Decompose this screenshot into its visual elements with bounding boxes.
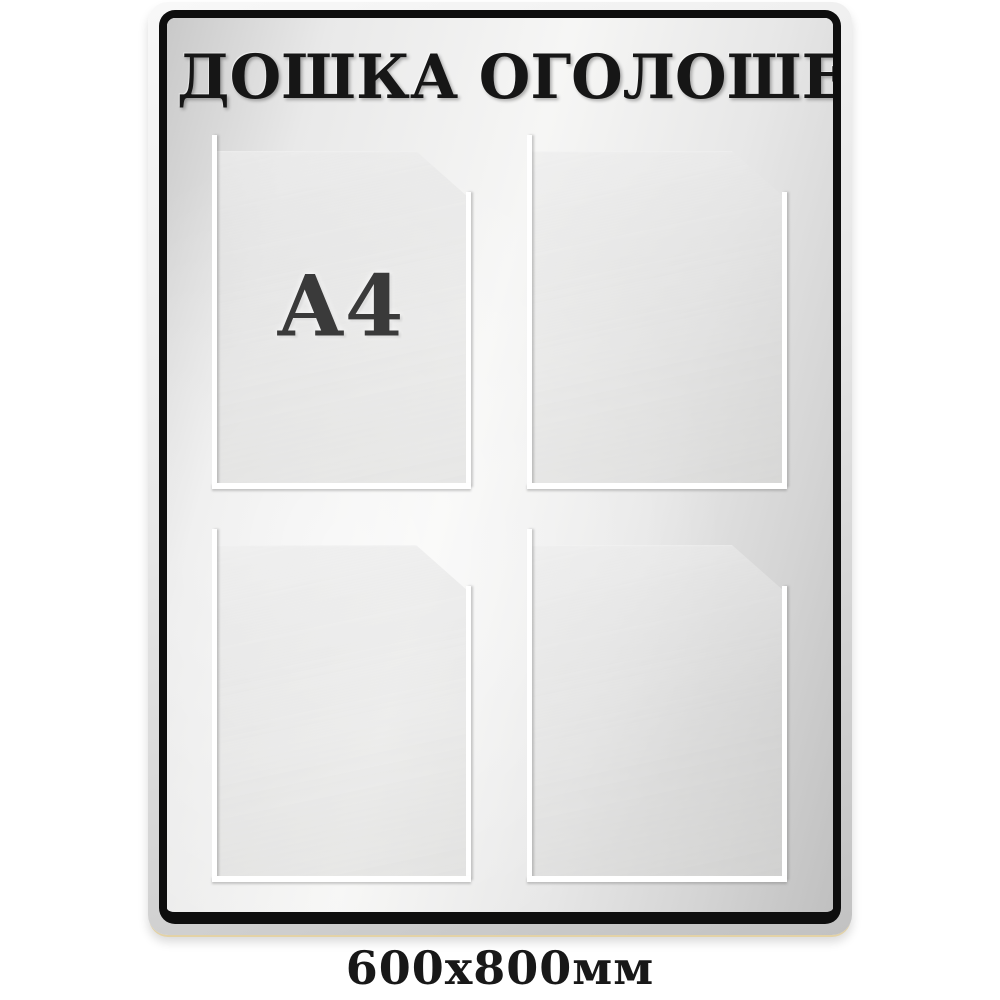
pocket-format-label: A4 xyxy=(278,257,406,356)
board-interior: ДОШКА ОГОЛОШЕНЬ A4 xyxy=(167,18,833,912)
pocket-sheet xyxy=(215,545,468,877)
pocket-bottom-right xyxy=(527,529,787,882)
pocket-edge-bottom xyxy=(527,876,787,882)
pocket-edge-left xyxy=(212,135,217,487)
board-size-caption: 600x800мм xyxy=(0,941,1000,995)
pocket-top-left: A4 xyxy=(212,135,471,489)
pocket-edge-right xyxy=(782,586,787,880)
board-title: ДОШКА ОГОЛОШЕНЬ xyxy=(177,42,823,113)
pocket-sheet xyxy=(530,151,784,484)
board-frame: ДОШКА ОГОЛОШЕНЬ A4 xyxy=(159,10,841,924)
pocket-sheet xyxy=(530,545,784,877)
pocket-edge-left xyxy=(527,135,532,487)
pocket-edge-bottom xyxy=(212,876,471,882)
pocket-edge-right xyxy=(466,586,471,880)
pocket-edge-bottom xyxy=(527,483,787,489)
pocket-edge-bottom xyxy=(212,483,471,489)
product-photo: ДОШКА ОГОЛОШЕНЬ A4 xyxy=(0,0,1000,1000)
pocket-edge-left xyxy=(527,529,532,880)
pocket-edge-right xyxy=(466,192,471,487)
pocket-edge-right xyxy=(782,192,787,487)
pocket-edge-left xyxy=(212,529,217,880)
pocket-bottom-left xyxy=(212,529,471,882)
notice-board: ДОШКА ОГОЛОШЕНЬ A4 xyxy=(148,2,852,935)
pocket-top-right xyxy=(527,135,787,489)
